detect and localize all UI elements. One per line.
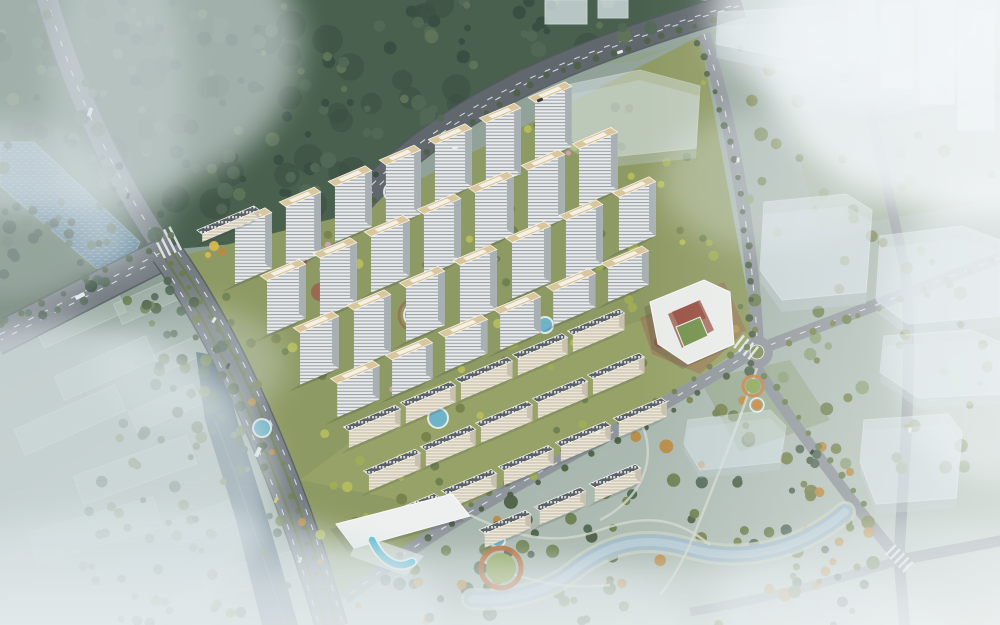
tower-side	[514, 103, 521, 174]
street-tree	[513, 89, 520, 96]
street-tree	[287, 478, 291, 482]
tower-side	[565, 82, 572, 147]
tower-side	[350, 238, 357, 303]
site-blossoms-tree	[566, 150, 571, 155]
street-tree	[527, 81, 534, 88]
forest-tree	[400, 95, 409, 104]
forest-tree	[372, 128, 384, 140]
forest-tree	[323, 52, 332, 61]
street-tree	[561, 68, 566, 73]
forest-blob	[392, 70, 412, 90]
street-tree	[179, 271, 185, 277]
forest-tree	[216, 204, 227, 215]
accent-tree	[269, 449, 275, 455]
forest-tree	[168, 232, 175, 239]
forest-tree	[338, 57, 349, 68]
street-tree	[199, 300, 203, 304]
street-tree	[295, 508, 301, 514]
forest-left-tree	[80, 297, 88, 305]
forest-tree	[425, 30, 439, 44]
tower-side	[384, 290, 391, 353]
forest-left-tree	[100, 277, 110, 287]
forest-tree	[341, 86, 347, 92]
site-gardens-tree	[579, 420, 587, 428]
site-gardens-tree	[222, 293, 230, 301]
forest-tree	[419, 108, 435, 124]
street-tree	[18, 310, 24, 316]
forest-blob	[361, 93, 382, 114]
forest-tree	[374, 20, 386, 32]
forest-tree	[457, 50, 470, 63]
site-gardens-tree	[524, 125, 532, 133]
accent-tree	[218, 248, 226, 256]
street-tree	[280, 461, 285, 466]
forest-tree	[364, 105, 371, 112]
forest-tree	[543, 27, 550, 34]
forest-tree	[531, 42, 547, 58]
tower-side	[490, 245, 497, 310]
site-gardens-tree	[288, 343, 298, 353]
site-gardens-tree	[628, 303, 637, 312]
site-gardens-tree	[553, 427, 560, 434]
boulevard-strip-tree	[151, 293, 159, 301]
boulevard-strip-tree	[165, 286, 175, 296]
street-tree	[507, 492, 513, 498]
tower-side	[299, 259, 306, 318]
accent-tree	[209, 241, 219, 251]
forest-tree	[532, 23, 541, 32]
site-gardens-tree	[396, 494, 407, 505]
accent-tree	[205, 252, 211, 258]
street-tree	[470, 119, 476, 125]
tower-side	[465, 124, 472, 187]
forest-tree	[273, 155, 283, 165]
site-gardens-tree	[628, 173, 635, 180]
forest-tree	[526, 30, 537, 41]
forest-left-tree	[38, 311, 47, 320]
forest-tree	[513, 6, 526, 19]
tower-side	[314, 187, 321, 254]
site-gardens-tree	[435, 478, 443, 486]
forest-left-tree	[54, 307, 61, 314]
tower-side	[611, 127, 618, 190]
forest-tree	[310, 163, 320, 173]
forest-tree	[406, 6, 417, 17]
forest-tree	[469, 61, 478, 70]
street-tree	[573, 62, 581, 70]
street-tree	[543, 72, 550, 79]
forest-tree	[413, 17, 424, 28]
street-tree	[469, 502, 474, 507]
street-tree	[288, 493, 294, 499]
forest-tree	[321, 99, 329, 107]
forest-tree	[464, 25, 471, 32]
site-gardens-tree	[477, 412, 484, 419]
forest-tree	[285, 172, 296, 183]
forest-tree	[384, 42, 397, 55]
forest-tree	[266, 132, 280, 146]
site-gardens-tree	[342, 482, 353, 493]
forest-tree	[298, 68, 305, 75]
forest-tree	[437, 114, 444, 121]
street-tree	[625, 46, 632, 53]
street-tree	[593, 55, 600, 62]
forest-tree	[363, 128, 372, 137]
fog-cloud	[95, 305, 285, 425]
forest-tree	[282, 111, 292, 121]
forest-tree	[463, 2, 470, 9]
tower-side	[454, 194, 461, 261]
street-tree	[561, 464, 568, 471]
distant-city-tower	[545, 0, 587, 24]
boulevard-strip-tree	[164, 277, 172, 285]
forest-blob	[313, 25, 343, 55]
street-tree	[611, 50, 618, 57]
street-tree	[187, 285, 192, 290]
tower-side	[507, 171, 514, 234]
forest-tree	[227, 166, 240, 179]
forest-tree	[428, 15, 441, 28]
forest-tree	[305, 131, 312, 138]
site-gardens-tree	[502, 278, 510, 286]
tower-side	[414, 145, 421, 214]
forest-left-tree	[25, 309, 32, 316]
forest-tree	[284, 189, 292, 197]
distant-city-tower	[598, 0, 628, 18]
forest-tree	[618, 23, 628, 33]
boulevard-strip-tree	[142, 300, 152, 310]
forest-tree	[300, 79, 312, 91]
forest-tree	[596, 22, 603, 29]
haze-wash-right	[640, 0, 1000, 625]
tower-side	[403, 215, 410, 276]
tower-side	[365, 166, 372, 227]
street-tree	[168, 261, 173, 266]
forest-tree	[458, 38, 465, 45]
forest-tree	[347, 99, 354, 106]
street-tree	[425, 534, 432, 541]
tower-side	[265, 208, 272, 269]
boulevard-strip-tree	[123, 296, 132, 305]
forest-tree	[373, 171, 379, 177]
forest-tree	[217, 183, 233, 199]
street-tree	[535, 480, 541, 486]
site-gardens-tree	[456, 404, 465, 413]
tower-side	[596, 200, 603, 265]
aerial-rendering	[0, 0, 1000, 625]
site-gardens-tree	[320, 429, 329, 438]
street-tree	[479, 506, 485, 512]
street-tree	[424, 149, 430, 155]
forest-blob	[330, 109, 353, 132]
site-gardens-tree	[324, 231, 332, 239]
tower-side	[544, 221, 551, 282]
aerial-masterplan-rendering: Aerial bird's-eye architectural renderin…	[0, 0, 1000, 625]
site-gardens-tree	[466, 236, 473, 243]
forest-tree	[411, 95, 426, 110]
site-gardens-tree	[330, 482, 338, 490]
street-tree	[497, 102, 503, 108]
forest-tree	[239, 176, 246, 183]
forest-tree	[233, 188, 246, 201]
haze-wash-bottom	[0, 545, 1000, 625]
tower-side	[558, 150, 565, 219]
tower-side	[438, 266, 445, 325]
tower-side	[332, 311, 339, 368]
site-gardens-tree	[355, 456, 364, 465]
forest-tree	[320, 152, 336, 168]
site-gardens-tree	[421, 432, 431, 442]
